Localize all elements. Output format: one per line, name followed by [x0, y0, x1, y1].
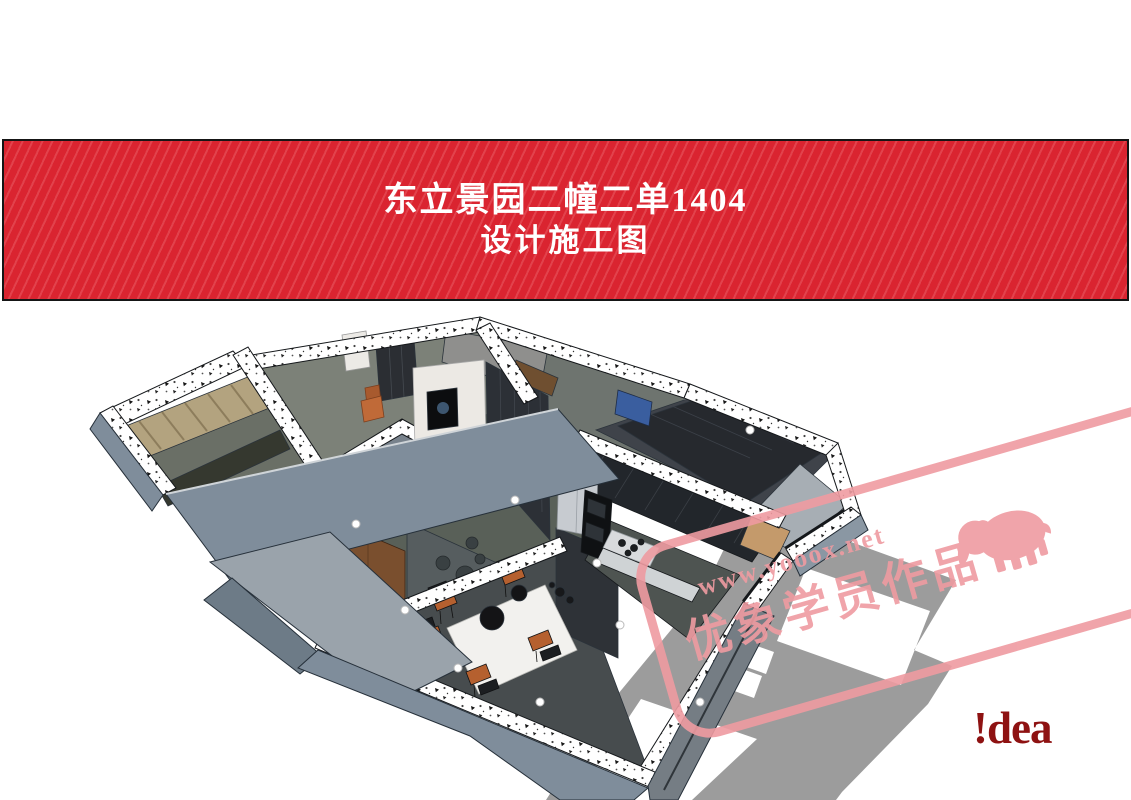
idea-brand-logo: !dea: [973, 706, 1052, 751]
orange-armchair-seat: [361, 396, 384, 422]
floorplan-rendering: www.yooox.net 优象学员作品: [0, 0, 1131, 800]
tv-picture: [437, 402, 449, 414]
presentation-slide: 东立景园二幢二单1404 设计施工图: [0, 0, 1131, 800]
pendant-lamp-large: [480, 606, 504, 630]
pendant-lamp-small: [511, 585, 527, 601]
